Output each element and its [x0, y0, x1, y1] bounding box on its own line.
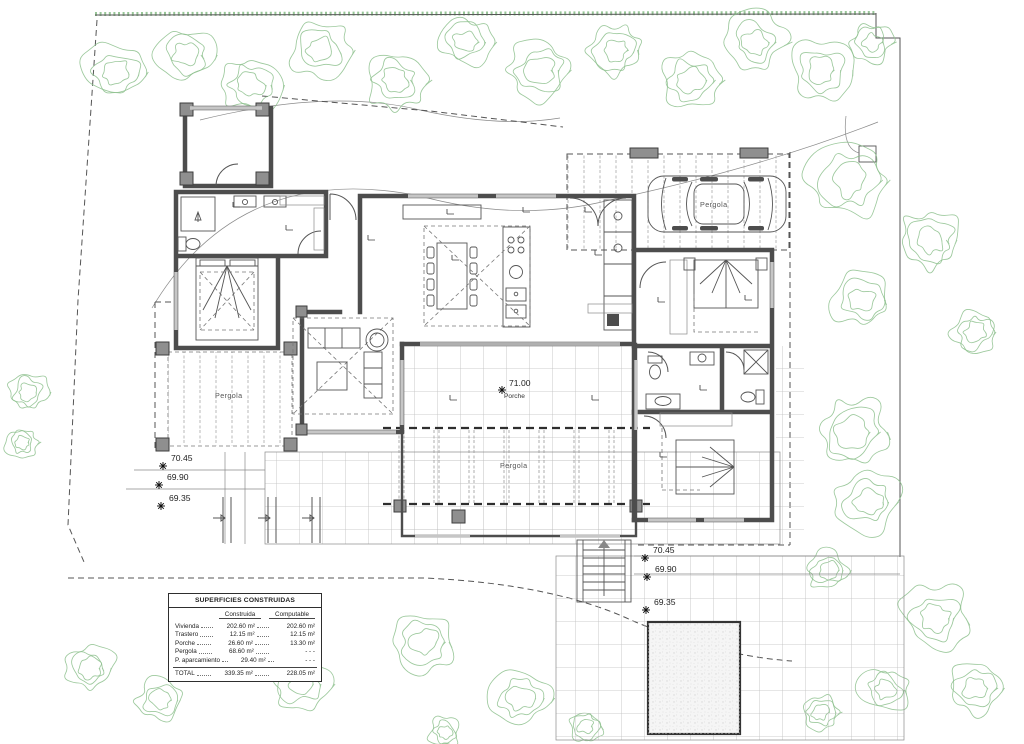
total-name: TOTAL	[175, 670, 195, 677]
master-bed	[196, 258, 258, 340]
row-construida: 26.60 m²	[213, 640, 253, 647]
terrain-contour	[200, 101, 560, 122]
tree-scribble	[8, 375, 52, 408]
carport-slats	[567, 154, 789, 250]
closet	[280, 196, 324, 205]
table-row: Vivienda 202.60 m² 202.60 m²	[169, 621, 321, 630]
tree-scribble	[382, 68, 409, 93]
row-construida: 68.60 m²	[214, 648, 254, 655]
tree-scribble	[604, 40, 629, 62]
tree-scribble	[4, 431, 41, 458]
porch-label: Porche	[504, 393, 525, 400]
row-computable: - - -	[271, 648, 315, 655]
tree-scribble	[149, 689, 172, 710]
pergola-post	[284, 342, 297, 355]
pergola-left-label: Pergola	[215, 391, 243, 400]
tree-scribble	[833, 415, 870, 449]
tree-scribble	[305, 36, 331, 62]
row-construida: 202.60 m²	[215, 623, 255, 630]
level-value: 69.35	[169, 493, 191, 503]
bathrooms-east	[646, 350, 768, 409]
tree-scribble	[152, 31, 217, 80]
row-computable: - - -	[276, 657, 315, 664]
toilet	[178, 237, 186, 251]
level-value: 70.45	[653, 545, 675, 555]
table-total-row: TOTAL 339.35 m² 228.05 m²	[169, 669, 321, 678]
closet	[670, 260, 687, 334]
shower-arrow	[195, 212, 201, 222]
tree-scribble	[143, 685, 178, 716]
carport-post	[630, 148, 658, 158]
tree-scribble	[662, 51, 725, 107]
floor-plan-drawing: Pergola Pergola Pergola	[0, 0, 1024, 744]
pergola-post	[156, 438, 169, 451]
toilet-tank	[648, 356, 662, 363]
tree-scribble	[102, 61, 129, 85]
carport-post	[740, 148, 768, 158]
column-construida: Construida	[219, 611, 261, 619]
closet	[314, 208, 324, 250]
tree-scribble	[677, 66, 707, 94]
table-row: Porche 26.60 m² 13.30 m²	[169, 638, 321, 647]
table-row: Pergola 68.60 m² - - -	[169, 647, 321, 656]
tree-scribble	[842, 478, 889, 520]
level-value: 69.90	[167, 472, 189, 482]
level-value: 69.35	[654, 597, 676, 607]
total-construida: 339.35 m²	[213, 670, 253, 677]
tree-scribble	[301, 30, 343, 66]
row-computable: 202.60 m²	[271, 623, 315, 630]
row-construida: 12.15 m²	[215, 631, 255, 638]
tree-scribble	[951, 670, 998, 707]
column-computable: Computable	[269, 611, 315, 619]
tree-scribble	[741, 30, 769, 56]
sofa	[364, 352, 382, 398]
pool-texture	[648, 622, 740, 734]
door-arc	[640, 262, 666, 288]
tree-scribble	[848, 289, 876, 311]
table-row: P. aparcamiento 29.40 m² - - -	[169, 655, 321, 664]
west-boundary-dashed	[68, 20, 97, 562]
porch-level-value: 71.00	[509, 378, 531, 388]
tree-scribble	[861, 33, 883, 53]
door-arc	[298, 231, 321, 254]
areas-table-title: SUPERFICIES CONSTRUIDAS	[169, 594, 321, 608]
row-name: Porche	[175, 640, 195, 647]
pergola-carport-label: Pergola	[700, 200, 728, 209]
tree-scribble	[666, 59, 716, 102]
tree-scribble	[505, 686, 536, 711]
kitchen-counter	[403, 205, 481, 219]
tree-scribble	[133, 675, 182, 722]
carport-pergola: Pergola	[567, 148, 789, 250]
tree-scribble	[855, 27, 885, 58]
kitchen-island	[503, 227, 530, 327]
door-arc	[726, 352, 744, 370]
level-value: 70.45	[171, 453, 193, 463]
tree-scribble	[852, 488, 884, 515]
sink	[234, 196, 256, 207]
row-name: Pergola	[175, 648, 197, 655]
row-name: Trastero	[175, 631, 198, 638]
tree-scribble	[437, 726, 453, 739]
pergola-post	[284, 438, 297, 451]
pergola-post	[394, 500, 406, 512]
tree-scribble	[19, 383, 37, 402]
entry-door-arc	[330, 194, 356, 220]
table-divider	[173, 667, 317, 668]
tree-scribble	[445, 22, 486, 60]
row-name: Vivienda	[175, 623, 199, 630]
tree-scribble	[524, 58, 555, 84]
floor-plan-canvas: Pergola Pergola Pergola	[0, 0, 1024, 744]
tree-scribble	[452, 31, 479, 51]
armchair	[366, 329, 388, 351]
row-computable: 12.15 m²	[271, 631, 315, 638]
toilet	[650, 365, 661, 379]
toilet-tank	[756, 390, 764, 404]
tree-scribble	[80, 42, 148, 92]
tree-scribble	[907, 219, 955, 264]
row-construida: 29.40 m²	[230, 657, 266, 664]
tree-scribble	[78, 656, 101, 680]
tree-scribble	[800, 53, 845, 94]
tree-scribble	[948, 309, 996, 353]
closet	[660, 413, 732, 426]
door-arc	[216, 164, 238, 186]
tree-scribble	[513, 49, 564, 92]
tree-scribble	[237, 72, 266, 96]
east-boundary-line	[876, 13, 900, 557]
tree-scribble	[963, 321, 987, 343]
tree-scribble	[902, 213, 958, 273]
tree-scribble	[408, 629, 439, 656]
tree-scribble	[792, 40, 854, 101]
pergola-post	[156, 342, 169, 355]
tree-scribble	[171, 43, 198, 66]
utility-connection-arc	[845, 116, 859, 153]
setback-dashed-line	[262, 96, 563, 127]
tree-scribble	[958, 316, 995, 352]
total-computable: 228.05 m²	[271, 670, 315, 677]
tree-scribble	[907, 599, 960, 642]
coffee-table	[317, 362, 347, 390]
tree-scribble	[832, 162, 866, 200]
tree-scribble	[393, 616, 454, 676]
level-value: 69.90	[655, 564, 677, 574]
table-row: Trastero 12.15 m² 12.15 m²	[169, 630, 321, 639]
tree-scribble	[724, 8, 793, 70]
pergola-left: Pergola	[156, 342, 297, 451]
areas-table-header: Construida Computable	[169, 608, 321, 621]
pergola-post	[452, 510, 465, 523]
tree-scribble	[487, 670, 555, 725]
toilet	[741, 392, 755, 402]
tree-scribble	[917, 226, 943, 255]
door-arc	[648, 352, 668, 372]
tree-scribble	[802, 142, 890, 219]
tree-scribble	[15, 435, 30, 450]
row-name: P. aparcamiento	[175, 657, 220, 664]
tree-scribble	[506, 39, 572, 105]
tree-scribble	[898, 584, 970, 652]
tree-scribble	[962, 677, 988, 698]
level-marker-star	[159, 462, 167, 470]
sofa	[308, 328, 360, 348]
closet	[588, 304, 632, 313]
tree-scribble	[920, 604, 951, 634]
tree-scribble	[166, 34, 205, 76]
row-computable: 13.30 m²	[271, 640, 315, 647]
areas-table: SUPERFICIES CONSTRUIDAS Construida Compu…	[168, 593, 322, 682]
bedroom2	[670, 258, 767, 334]
tree-scribble	[369, 55, 432, 112]
living-room-set	[293, 318, 393, 414]
tree-scribble	[809, 56, 834, 84]
pergola-bottom-label: Pergola	[500, 461, 528, 470]
tree-scribble	[834, 470, 903, 537]
